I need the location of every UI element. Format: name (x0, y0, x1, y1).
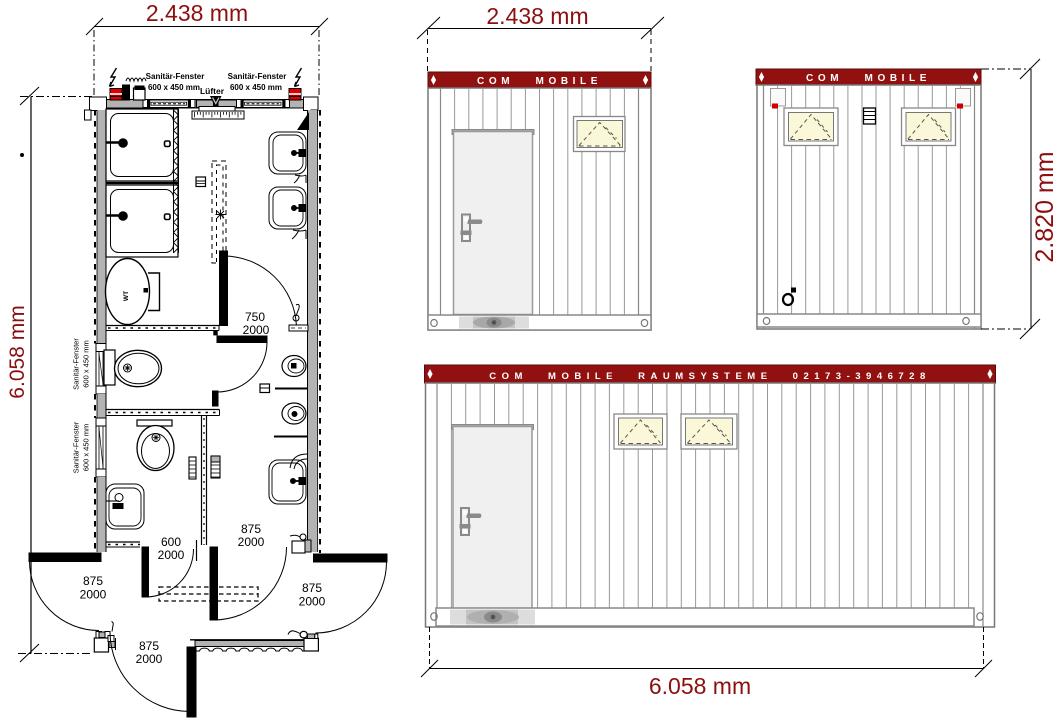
svg-text:WT: WT (123, 291, 130, 301)
svg-text:600 x 450 mm: 600 x 450 mm (82, 424, 91, 472)
svg-text:2.820 mm: 2.820 mm (1031, 151, 1058, 262)
svg-text:2000: 2000 (80, 588, 107, 602)
svg-text:600 x 450 mm: 600 x 450 mm (82, 340, 91, 388)
svg-text:875: 875 (139, 639, 159, 653)
svg-text:2000: 2000 (158, 548, 185, 562)
svg-text:875: 875 (241, 522, 261, 536)
svg-text:Sanitär-Fenster: Sanitär-Fenster (72, 421, 81, 473)
svg-text:600 x 450 mm: 600 x 450 mm (148, 83, 200, 92)
svg-text:875: 875 (83, 574, 103, 588)
svg-text:2.438 mm: 2.438 mm (486, 3, 588, 29)
svg-text:2000: 2000 (238, 535, 265, 549)
svg-text:COM MOBILE RAUMSYSTEME 02173-3: COM MOBILE RAUMSYSTEME 02173-3946728 (489, 371, 930, 382)
svg-text:6.058 mm: 6.058 mm (6, 305, 29, 398)
svg-text:875: 875 (302, 581, 322, 595)
svg-text:600 x 450 mm: 600 x 450 mm (230, 83, 282, 92)
svg-text:COM MOBILE: COM MOBILE (806, 73, 931, 84)
svg-text:750: 750 (245, 310, 265, 324)
svg-text:Sanitär-Fenster: Sanitär-Fenster (228, 72, 287, 81)
svg-text:Sanitär-Fenster: Sanitär-Fenster (146, 72, 205, 81)
svg-text:2000: 2000 (243, 323, 270, 337)
svg-text:Lüfter: Lüfter (200, 86, 225, 96)
svg-text:Sanitär-Fenster: Sanitär-Fenster (72, 338, 81, 390)
svg-text:2000: 2000 (136, 652, 163, 666)
svg-text:6.058 mm: 6.058 mm (649, 673, 751, 699)
svg-text:COM MOBILE: COM MOBILE (477, 76, 602, 87)
svg-text:600: 600 (161, 535, 181, 549)
svg-text:2.438 mm: 2.438 mm (146, 0, 248, 26)
svg-text:2000: 2000 (299, 595, 326, 609)
